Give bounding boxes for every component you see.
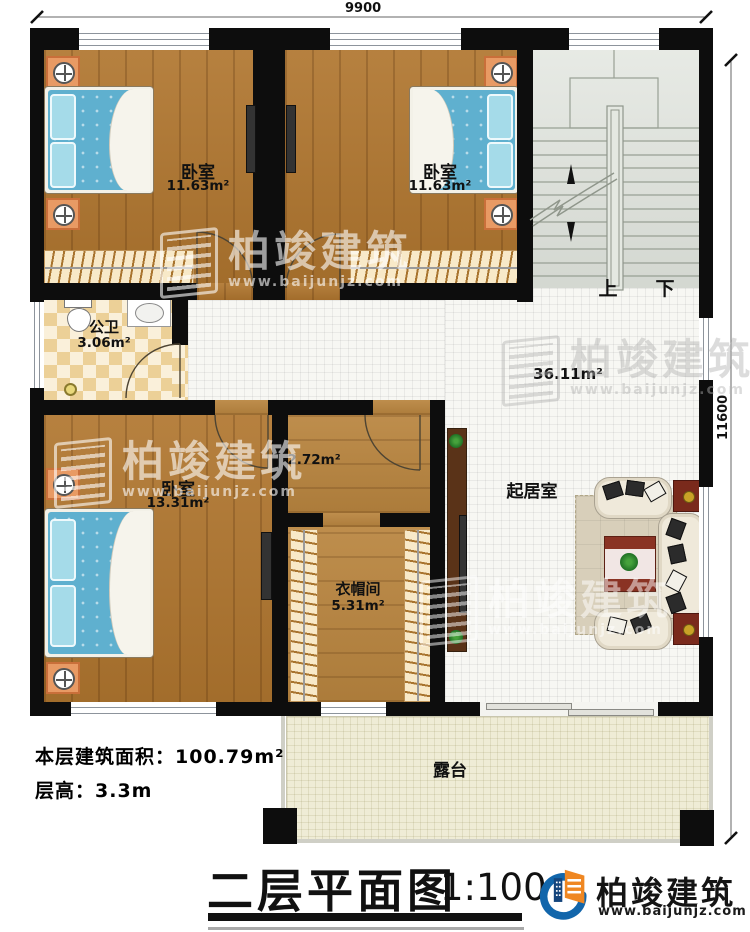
wall-cloakroom-top-left [288, 513, 323, 527]
cloakroom-area: 5.31m² [331, 598, 384, 614]
window-bottom-bedroom3 [71, 702, 216, 716]
door-threshold [285, 283, 340, 300]
sliding-door-panel [568, 709, 654, 716]
lamp-icon [53, 668, 75, 690]
floor-height-note: 层高：3.3m [35, 776, 152, 803]
cushion [667, 544, 686, 565]
cloakroom-rack-left [290, 529, 318, 702]
door-threshold [197, 283, 255, 300]
cloakroom-rack-right [404, 529, 432, 702]
bedroom-left-area: 13.31m² [147, 495, 210, 511]
sliding-door-panel [486, 703, 572, 710]
tv-bedroom1 [246, 105, 256, 173]
living-room-label: 起居室 [507, 477, 558, 502]
nightstand [46, 56, 80, 88]
bed-bedroom1 [44, 86, 154, 194]
lamp-icon [491, 62, 513, 84]
bathroom-label: 公卫 [89, 316, 119, 337]
nightstand [484, 56, 518, 88]
terrace-post-left [263, 808, 297, 844]
nightstand [46, 662, 80, 694]
wall-stair-left [517, 28, 533, 302]
stairs-down-label: 下 [655, 274, 674, 301]
wall-cloakroom-right [430, 400, 445, 702]
tv-bedroom3 [261, 532, 272, 600]
toilet-icon [64, 297, 92, 331]
dimension-top: 9900 [345, 1, 381, 16]
floor-drain-icon [64, 383, 77, 396]
terrace-label: 露台 [433, 756, 467, 781]
door-threshold [373, 400, 430, 415]
pillow [50, 585, 76, 647]
tv-bedroom2 [286, 105, 296, 173]
terrace-post-right [680, 810, 714, 846]
page-title: 二层平面图 [207, 855, 457, 921]
wall-hall-top [268, 400, 373, 415]
plant-icon [449, 434, 463, 448]
lamp-icon [53, 474, 75, 496]
terrace-rail-bottom [281, 839, 713, 843]
nightstand [46, 468, 80, 500]
nightstand [484, 198, 518, 230]
cloakroom-label: 衣帽间 [335, 578, 380, 599]
wall-bedroom2-bottom [340, 283, 517, 300]
sink-icon [127, 298, 171, 327]
bedroom-top-left-area: 11.63m² [167, 178, 230, 194]
pillow [50, 94, 76, 140]
window-top-stairs [569, 28, 659, 50]
title-underline [208, 913, 522, 921]
window-bottom-cloakroom [321, 702, 386, 716]
plant-icon [449, 630, 463, 644]
terrace-floor [286, 716, 712, 842]
wall-bedroom3-right [272, 415, 288, 702]
wall-bedroom-divider [253, 28, 285, 300]
lamp-icon [53, 204, 75, 226]
stair-floor [533, 50, 699, 288]
wardrobe-rack [350, 250, 519, 285]
bathroom-area: 3.06m² [77, 335, 130, 351]
wall-bedroom3-top [30, 400, 215, 415]
wall-bathroom-right [172, 295, 188, 345]
lamp-icon [491, 204, 513, 226]
pillow [487, 94, 513, 140]
window-top-bedroom1 [79, 28, 209, 50]
pillow [50, 519, 76, 581]
door-threshold [323, 513, 380, 527]
lamp-icon [53, 62, 75, 84]
brand-url: www.baijunjz.com [598, 904, 747, 919]
cushion [625, 480, 645, 497]
window-right-living-top [699, 318, 713, 380]
dimension-right: 11600 [716, 395, 731, 440]
nightstand [46, 198, 80, 230]
floor-area-note: 本层建筑面积：100.79m² [35, 742, 284, 769]
tv-living-room [459, 515, 467, 613]
window-left-bathroom [30, 302, 44, 388]
title-underline-light [208, 927, 524, 930]
floor-plan-canvas: 卧室 11.63m² 卧室 11.63m² 卧室 13.31m² 公卫 3.06… [0, 0, 750, 932]
scale-label: 1:100 [440, 866, 547, 909]
pillow [50, 142, 76, 188]
door-threshold [215, 400, 268, 415]
hall-tile-floor [188, 300, 445, 400]
stairs-up-label: 上 [598, 274, 617, 301]
pillow [487, 142, 513, 188]
door-threshold [172, 345, 188, 400]
brand-logo-icon [536, 862, 592, 930]
bedroom-top-mid-area: 11.63m² [409, 178, 472, 194]
wall-cloakroom-top-right [380, 513, 445, 527]
plant-icon [620, 553, 638, 571]
living-room-area: 36.11m² [533, 365, 603, 383]
window-top-bedroom2 [330, 28, 461, 50]
bed-bedroom3 [44, 508, 154, 658]
hall-area: 2.72m² [287, 452, 340, 468]
wardrobe-rack [44, 250, 194, 285]
window-right-living-bottom [699, 487, 713, 637]
